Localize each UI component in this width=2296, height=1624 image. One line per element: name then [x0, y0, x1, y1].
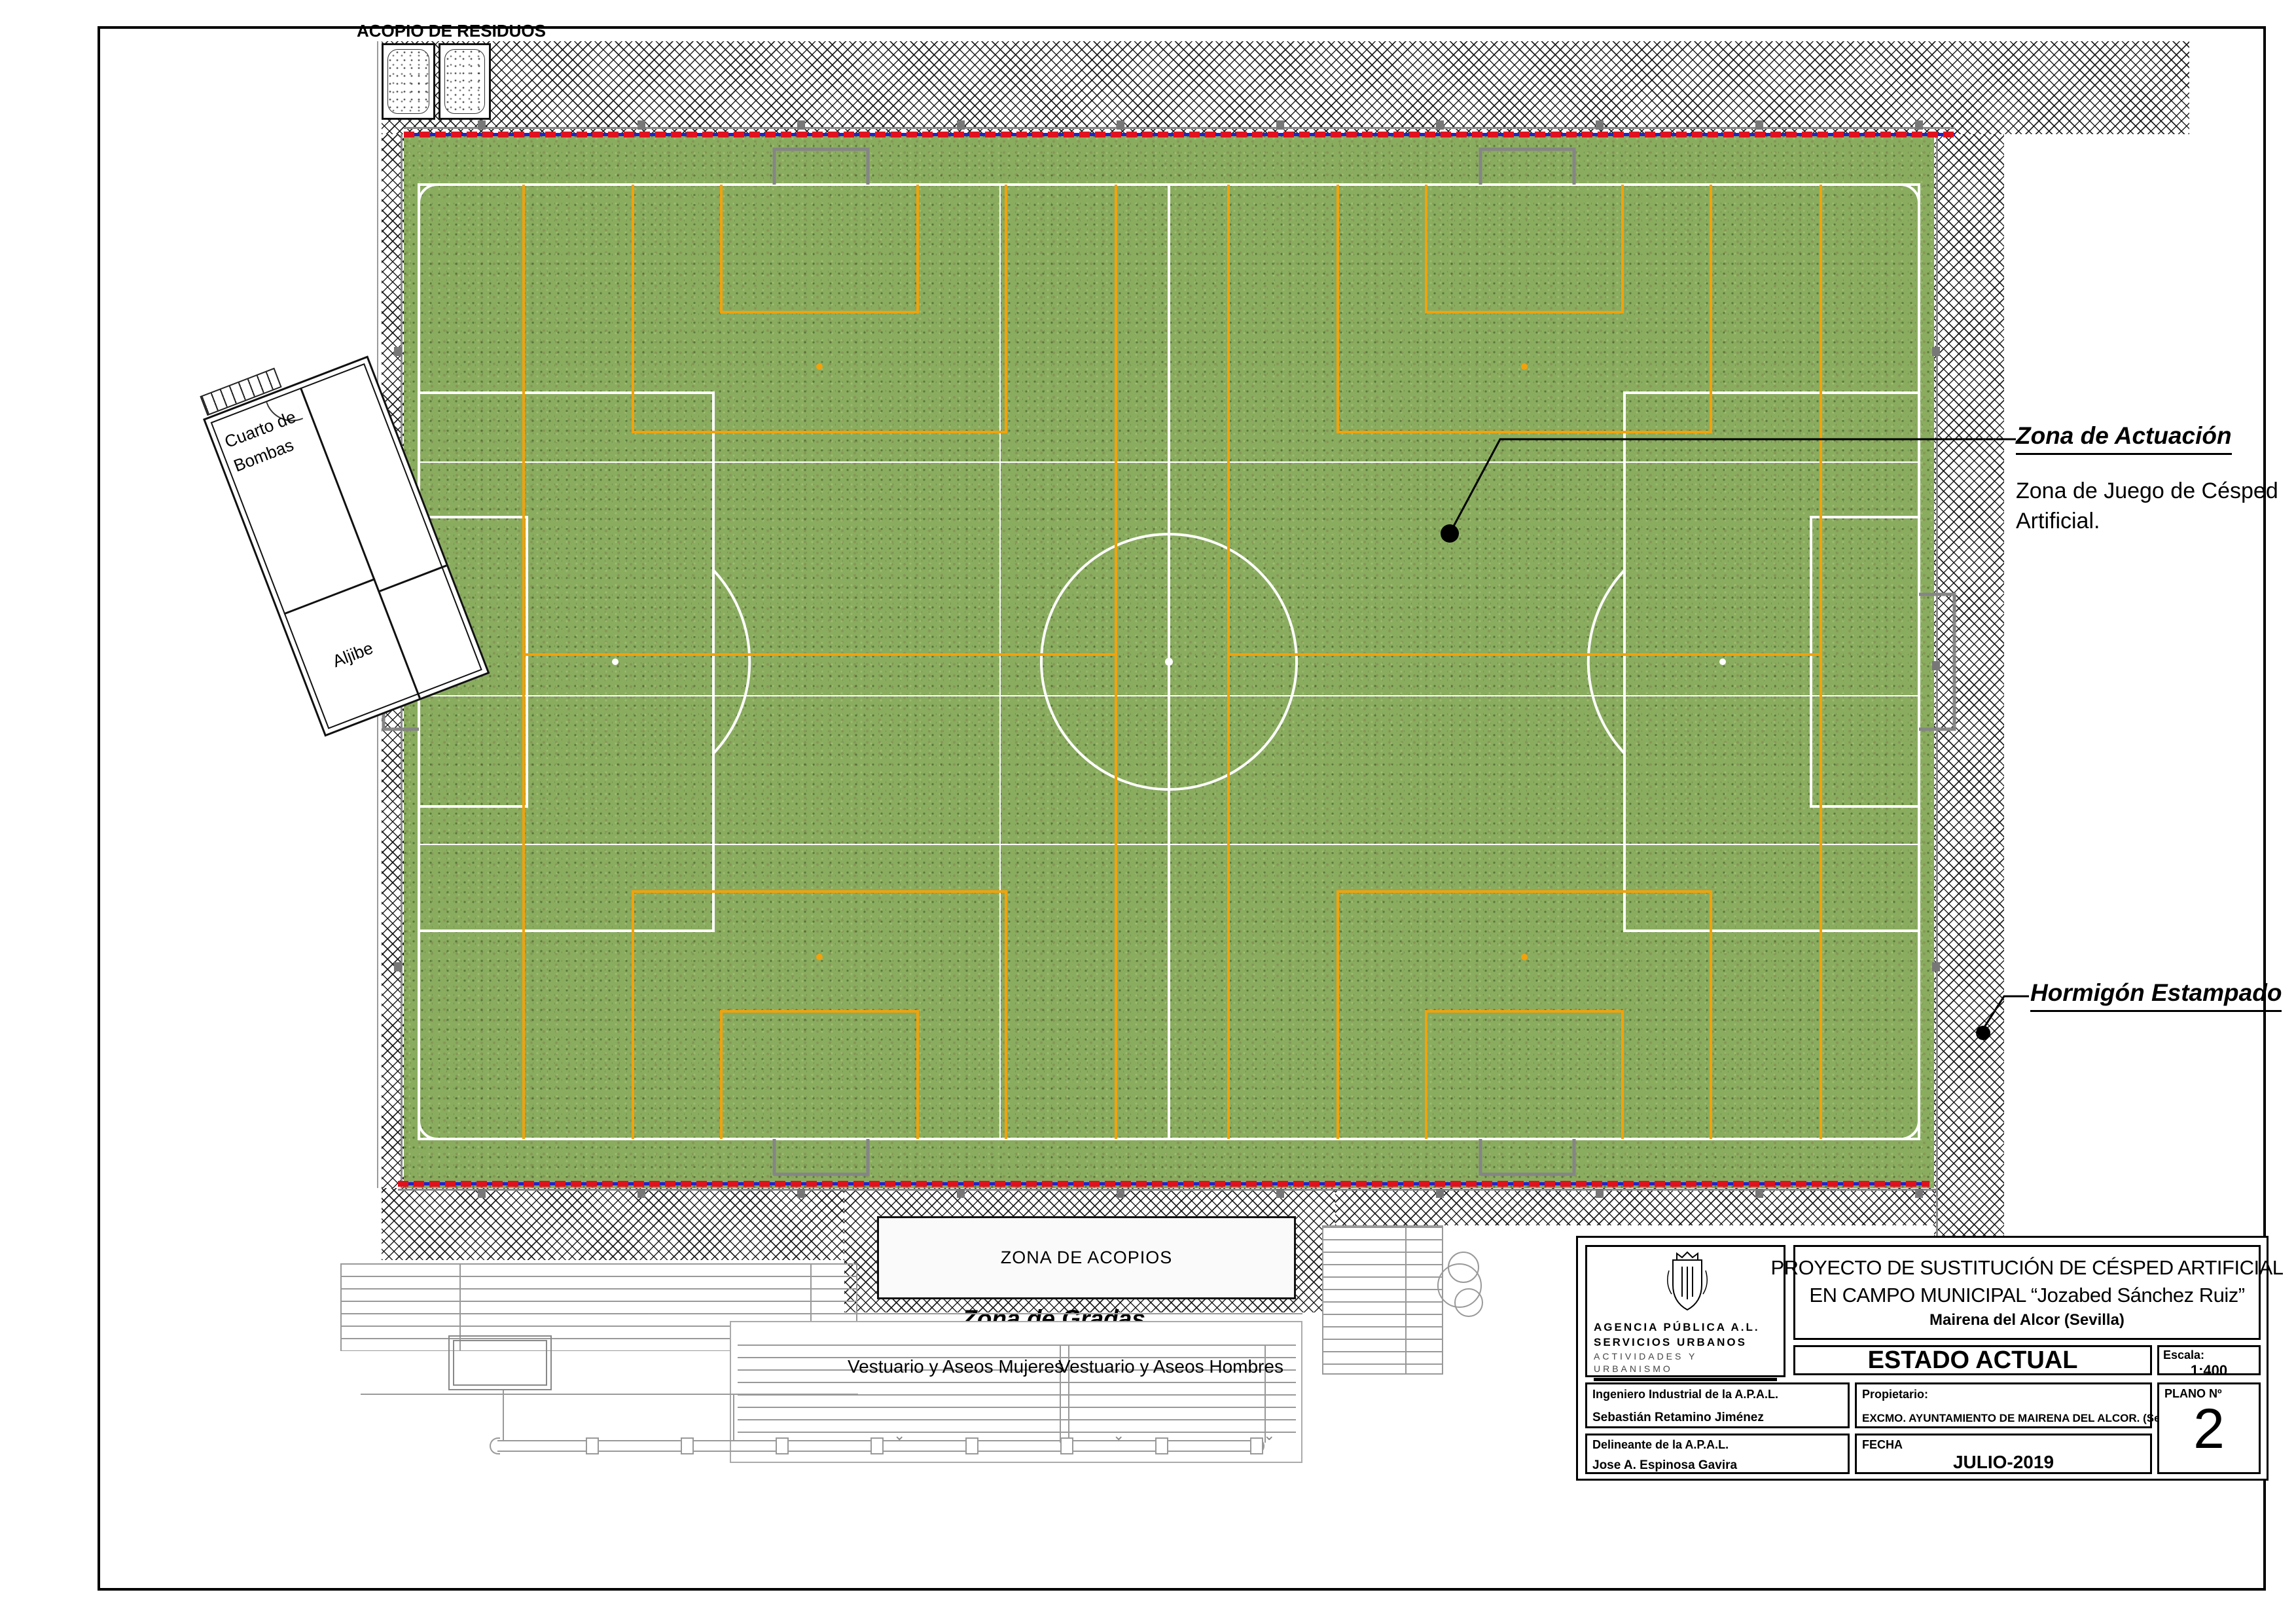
- fence-post: [870, 1437, 884, 1454]
- municipal-crest-icon: [1594, 1250, 1781, 1320]
- kiosk-inner: [453, 1340, 547, 1386]
- zona-juego-line1: Zona de Juego de Césped: [2016, 477, 2278, 507]
- escala-value: 1:400: [2163, 1362, 2255, 1379]
- penalty-arc-left: [713, 570, 749, 753]
- agency-line1: AGENCIA PÚBLICA A.L.: [1594, 1320, 1777, 1335]
- agency-logo-cell: AGENCIA PÚBLICA A.L. SERVICIOS URBANOS A…: [1585, 1245, 1785, 1377]
- fence-connector: [733, 1395, 734, 1441]
- fence-post: [681, 1437, 694, 1454]
- fence-post: [776, 1437, 789, 1454]
- acopio-residuos-label: ACOPIO DE RESIDUOS: [357, 21, 553, 41]
- cross-pitch-a-penalty-top: [633, 185, 1006, 432]
- cross-pitch-b-goalbox-top: [1426, 185, 1623, 312]
- fecha-value: JULIO-2019: [1862, 1452, 2145, 1473]
- tree-symbol: [1448, 1252, 1479, 1283]
- ingeniero-label: Ingeniero Industrial de la A.P.A.L.: [1592, 1388, 1842, 1401]
- vestuario-mujeres-label: Vestuario y Aseos Mujeres: [848, 1356, 1064, 1377]
- escala-label: Escala:: [2163, 1348, 2255, 1362]
- goal-frame-main-right: [1919, 594, 1954, 729]
- stairs-divider: [1405, 1227, 1407, 1373]
- container-fill-texture: [444, 49, 485, 114]
- fence-post: [965, 1437, 978, 1454]
- fence-post: [1060, 1437, 1073, 1454]
- residue-container-1: [382, 43, 435, 120]
- container-fill-texture: [387, 49, 429, 114]
- logo-divider-bar: [1594, 1378, 1777, 1381]
- goal-area-right: [1811, 517, 1919, 806]
- ingeniero-name: Sebastián Retamino Jiménez: [1592, 1411, 1842, 1425]
- propietario-label: Propietario:: [1862, 1388, 2145, 1401]
- fence-post: [1250, 1437, 1263, 1454]
- zona-juego-line2: Artificial.: [2016, 507, 2278, 537]
- aisle-arrow-icon: ⌄: [1263, 1427, 1275, 1444]
- project-title-line3: Mairena del Alcor (Sevilla): [1929, 1311, 2125, 1329]
- penalty-arc-right: [1588, 570, 1624, 753]
- plan-sheet: ACOPIO DE RESIDUOS: [0, 0, 2296, 1624]
- estado-actual-label: ESTADO ACTUAL: [1868, 1346, 2078, 1375]
- cross-pitch-a-spot: [816, 954, 823, 960]
- penalty-area-right: [1624, 393, 1919, 931]
- fecha-label: FECHA: [1862, 1438, 2145, 1452]
- fecha-cell: FECHA JULIO-2019: [1855, 1434, 2152, 1474]
- project-title-line1: PROYECTO DE SUSTITUCIÓN DE CÉSPED ARTIFI…: [1771, 1256, 2284, 1280]
- plano-cell: PLANO Nº 2: [2157, 1382, 2261, 1474]
- acopios-box: ZONA DE ACOPIOS: [877, 1216, 1296, 1299]
- stairs-right: [1322, 1225, 1443, 1375]
- fence-post: [1155, 1437, 1168, 1454]
- pitch-markings-svg: [367, 128, 1970, 1195]
- agency-line2: SERVICIOS URBANOS: [1594, 1335, 1777, 1350]
- escala-cell: Escala: 1:400: [2157, 1345, 2261, 1375]
- goal-frame-b-bottom: [1480, 1139, 1574, 1174]
- crest-crown: [1677, 1252, 1698, 1260]
- delineante-name: Jose A. Espinosa Gavira: [1592, 1458, 1842, 1473]
- corner-arc: [419, 1121, 437, 1139]
- penalty-spot-left: [612, 659, 619, 665]
- walkway-line: [361, 1394, 858, 1395]
- propietario-cell: Propietario: EXCMO. AYUNTAMIENTO DE MAIR…: [1855, 1382, 2152, 1428]
- fence-connector: [503, 1390, 504, 1441]
- delineante-cell: Delineante de la A.P.A.L. Jose A. Espino…: [1585, 1434, 1850, 1474]
- corner-arc: [1901, 1121, 1919, 1139]
- goal-frame-a-top: [774, 149, 868, 185]
- penalty-spot-right: [1719, 659, 1726, 665]
- cross-pitch-b-penalty-top: [1338, 185, 1711, 432]
- project-title-cell: PROYECTO DE SUSTITUCIÓN DE CÉSPED ARTIFI…: [1793, 1245, 2261, 1340]
- cross-pitch-a-goalbox-bottom: [721, 1011, 918, 1139]
- corner-arc: [1901, 185, 1919, 203]
- zona-actuacion-label: Zona de Actuación: [2016, 422, 2232, 455]
- kiosk-square: [448, 1335, 552, 1390]
- estado-cell: ESTADO ACTUAL: [1793, 1345, 2152, 1375]
- cross-pitch-b-spot: [1521, 954, 1528, 960]
- cross-pitch-b-penalty-bottom: [1338, 892, 1711, 1139]
- agency-line3: ACTIVIDADES Y URBANISMO: [1594, 1350, 1777, 1375]
- hatch-bottom-band-left: [382, 1188, 844, 1260]
- zona-acopios-label: ZONA DE ACOPIOS: [1001, 1248, 1173, 1268]
- fence-post: [586, 1437, 599, 1454]
- hormigon-estampado-label: Hormigón Estampado: [2030, 979, 2282, 1012]
- cross-pitch-b-goalbox-bottom: [1426, 1011, 1623, 1139]
- residue-container-2: [439, 43, 491, 120]
- project-title-line2: EN CAMPO MUNICIPAL “Jozabed Sánchez Ruiz…: [1809, 1284, 2244, 1307]
- center-spot: [1165, 658, 1173, 666]
- zona-juego-note: Zona de Juego de Césped Artificial.: [2016, 477, 2278, 537]
- propietario-value: EXCMO. AYUNTAMIENTO DE MAIRENA DEL ALCOR…: [1862, 1412, 2145, 1425]
- grandstand-top-line: [648, 1313, 1302, 1314]
- goal-frame-b-top: [1480, 149, 1574, 185]
- vestuario-hombres-label: Vestuario y Aseos Hombres: [1058, 1356, 1283, 1377]
- corner-arc: [419, 185, 437, 203]
- cross-pitch-a-spot: [816, 363, 823, 370]
- cross-pitch-a-penalty-bottom: [633, 892, 1006, 1139]
- goal-frame-a-bottom: [774, 1139, 868, 1174]
- cross-pitch-b-spot: [1521, 363, 1528, 370]
- delineante-label: Delineante de la A.P.A.L.: [1592, 1438, 1842, 1452]
- cross-pitch-a-goalbox-top: [721, 185, 918, 312]
- tree-symbol: [1454, 1288, 1483, 1317]
- plano-number: 2: [2164, 1401, 2253, 1457]
- ingeniero-cell: Ingeniero Industrial de la A.P.A.L. Seba…: [1585, 1382, 1850, 1428]
